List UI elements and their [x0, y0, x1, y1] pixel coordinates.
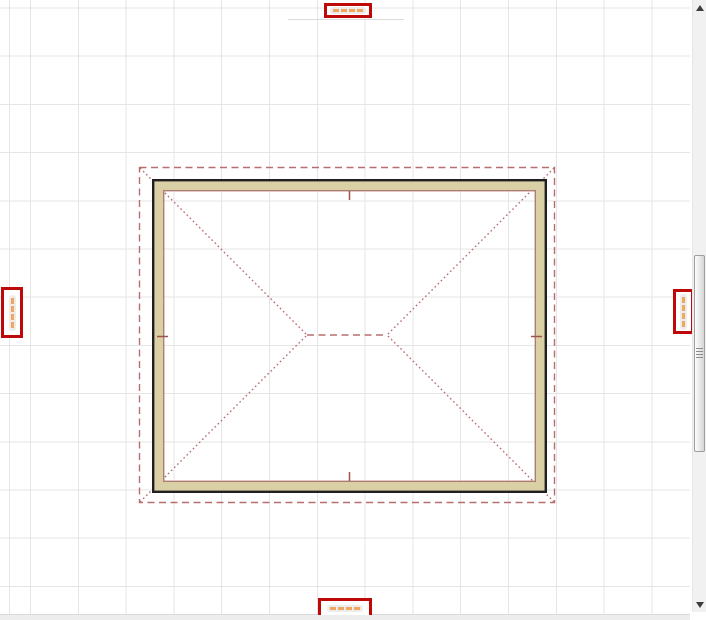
- roof-hip-line-bottom-left[interactable]: [140, 335, 307, 502]
- redacted-text-mark: [349, 9, 355, 12]
- redacted-text-mark: [682, 297, 685, 303]
- roof-hip-line-top-left[interactable]: [140, 168, 307, 335]
- redacted-text-mark: [11, 314, 14, 320]
- dimension-label-top[interactable]: [324, 3, 372, 18]
- scrollbar-thumb[interactable]: [694, 255, 705, 452]
- exterior-walls-outer-edge[interactable]: [153, 180, 546, 492]
- chevron-up-icon: [696, 5, 704, 11]
- redacted-text-mark: [682, 305, 685, 311]
- redacted-text-mark: [338, 607, 344, 610]
- redacted-text-mark: [11, 306, 14, 312]
- scroll-down-button[interactable]: [693, 597, 706, 612]
- dimension-text-left: [9, 295, 16, 331]
- plan-view-window: [0, 0, 706, 620]
- dimension-label-right[interactable]: [673, 289, 694, 334]
- redacted-text-mark: [11, 322, 14, 328]
- roof-hip-line-top-right[interactable]: [387, 168, 554, 335]
- redacted-text-mark: [330, 607, 336, 610]
- dimension-text-bottom: [327, 605, 363, 612]
- redacted-text-mark: [346, 607, 352, 610]
- redacted-text-mark: [682, 321, 685, 327]
- exterior-walls-inner-edge[interactable]: [164, 191, 536, 482]
- exterior-walls-fill[interactable]: [152, 179, 547, 493]
- dimension-label-left[interactable]: [1, 287, 23, 338]
- redacted-text-mark: [333, 9, 339, 12]
- chevron-down-icon: [696, 602, 704, 608]
- redacted-text-mark: [682, 313, 685, 319]
- dimension-text-top: [330, 7, 366, 14]
- redacted-text-mark: [341, 9, 347, 12]
- redacted-text-mark: [11, 298, 14, 304]
- vertical-scrollbar[interactable]: [692, 0, 706, 612]
- redacted-text-mark: [354, 607, 360, 610]
- redacted-text-mark: [357, 9, 363, 12]
- roof-plan-drawing: [0, 0, 706, 620]
- dimension-text-right: [680, 294, 687, 330]
- window-bottom-edge: [0, 615, 690, 620]
- scroll-up-button[interactable]: [693, 0, 706, 15]
- thumb-grip-icon: [696, 348, 703, 359]
- roof-hip-line-bottom-right[interactable]: [387, 335, 554, 502]
